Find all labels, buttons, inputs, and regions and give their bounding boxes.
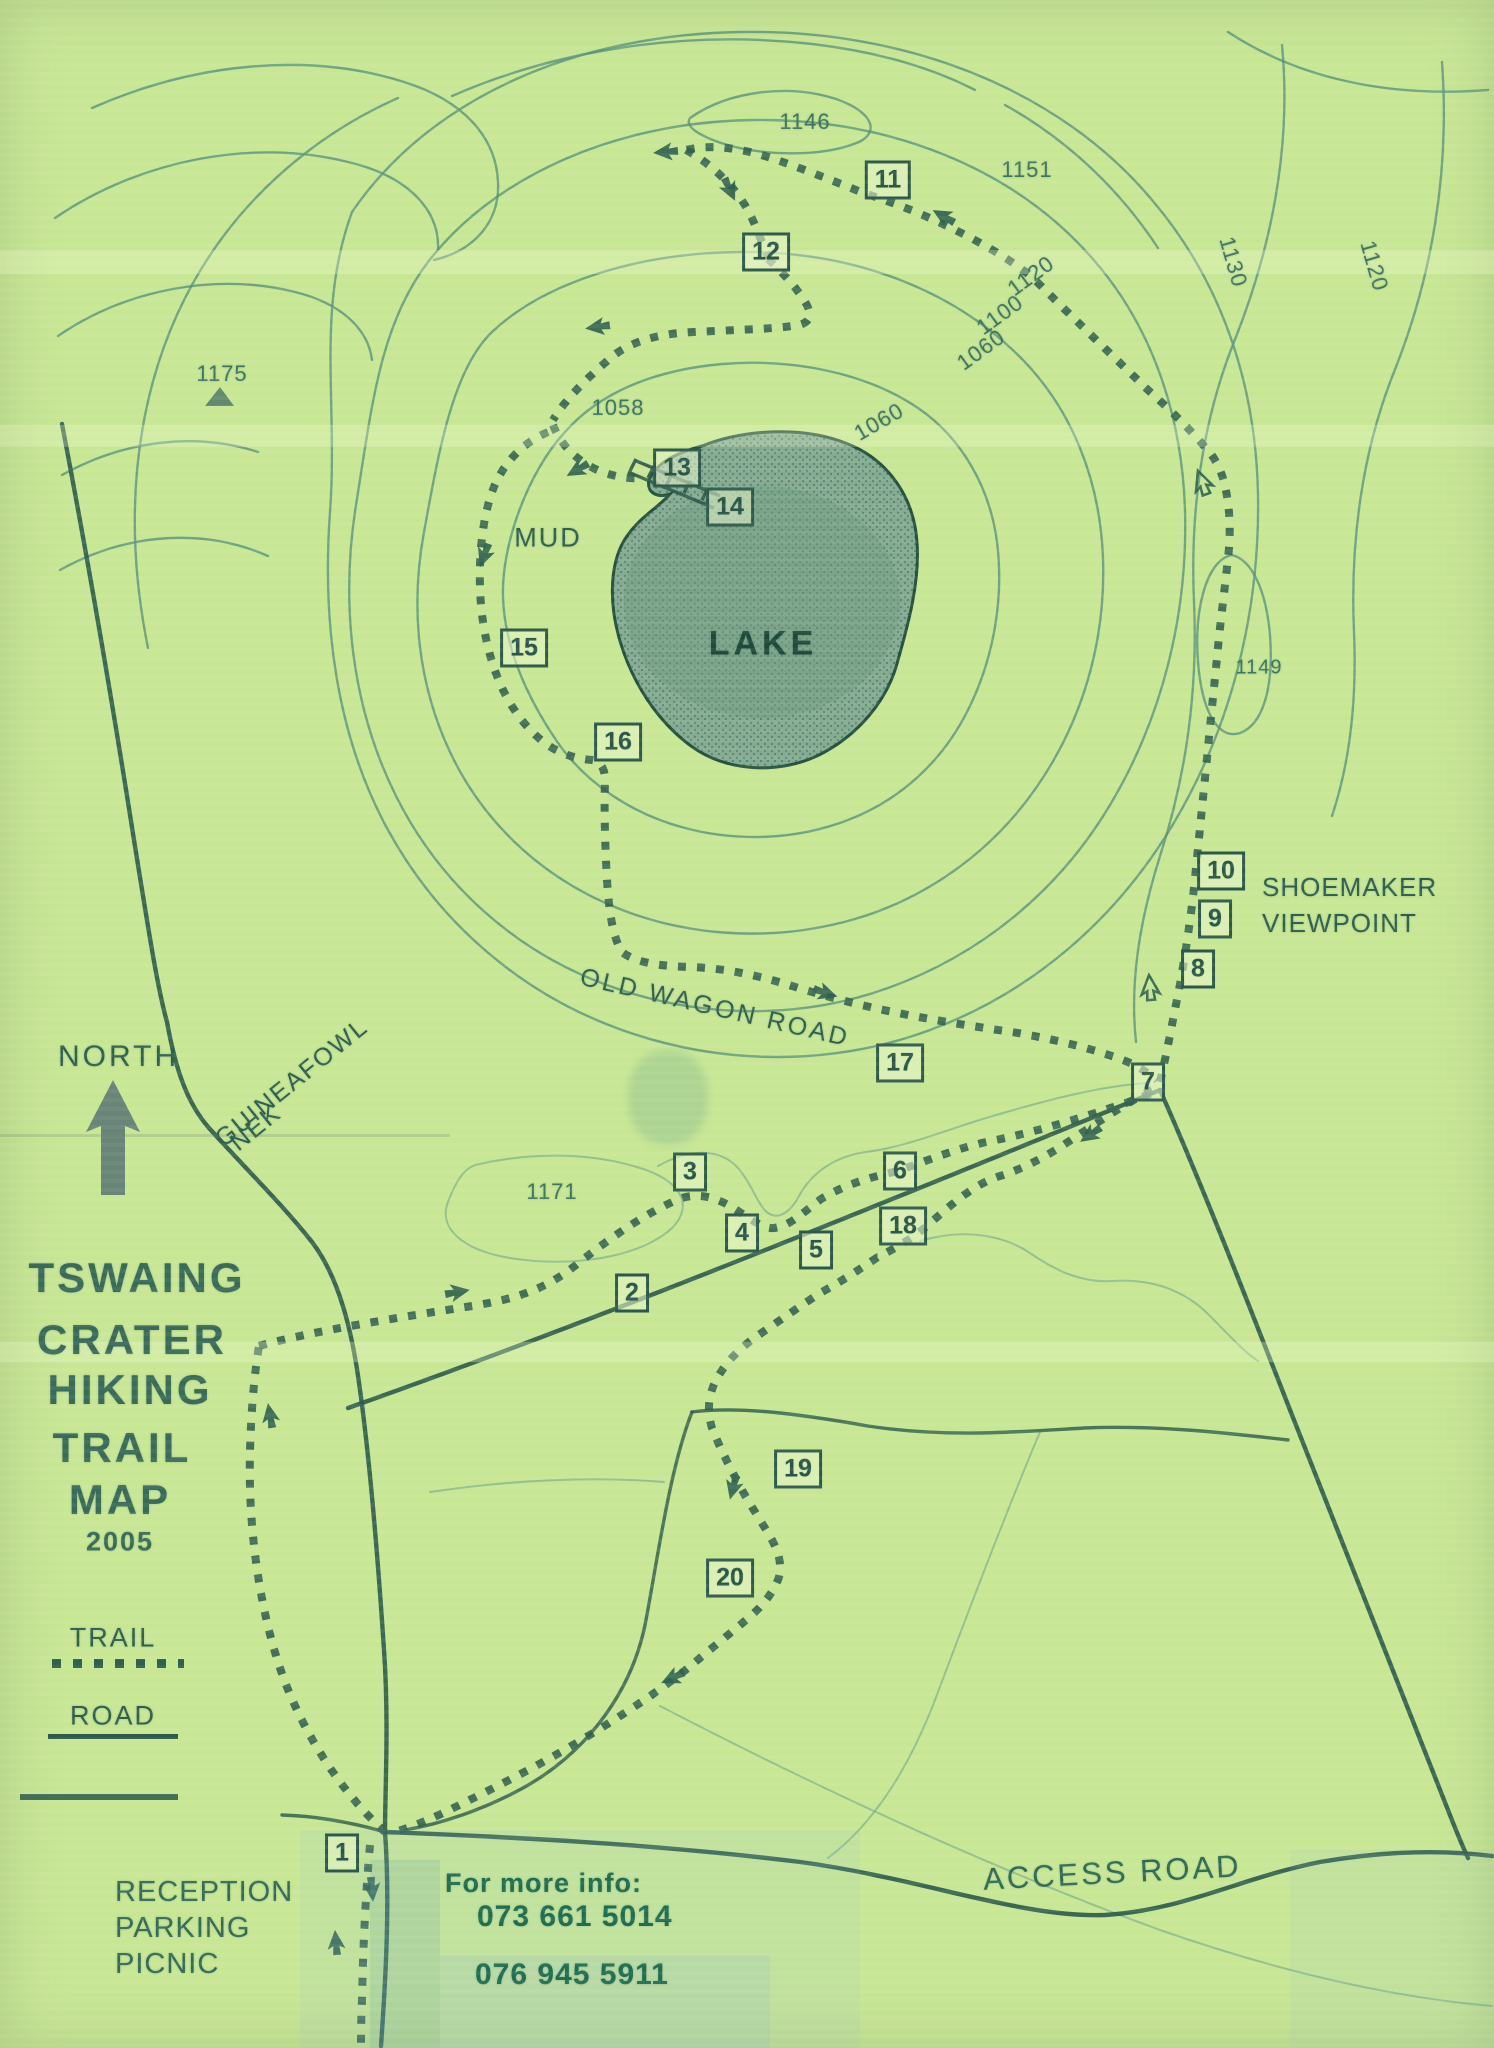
legend-road-label: ROAD [70,1701,156,1732]
north-arrow-icon [86,1080,140,1195]
waypoint-18-marker: 18 [879,1207,927,1246]
map-title-line1: TSWAING [29,1254,246,1302]
north-label: NORTH [58,1040,179,1074]
waypoint-1-marker: 1 [325,1834,359,1873]
waypoint-17-marker: 17 [876,1044,924,1083]
waypoint-9-marker: 9 [1198,900,1232,939]
inner-road-to-reception [405,1412,692,1830]
parking-label: PARKING [115,1912,250,1945]
hiking-trail-dashed [250,147,1230,2046]
shoemaker-label-line2: VIEWPOINT [1262,908,1417,939]
map-title-line2: CRATER [37,1316,227,1364]
legend-road-sample-lower [20,1794,178,1800]
info-heading: For more info: [445,1868,642,1899]
trail-direction-arrows [259,142,1215,1956]
waypoint-8-marker: 8 [1181,950,1215,989]
waypoint-10-marker: 10 [1197,852,1245,891]
waypoint-20-marker: 20 [706,1559,754,1598]
scanned-trail-map: 1146 1151 1130 1120 1120 1100 1060 1060 … [0,0,1494,2048]
elevation-label-1149: 1149 [1235,657,1282,680]
inner-road-east [692,1410,1288,1440]
lake-label: LAKE [709,625,818,664]
waypoint-2-marker: 2 [615,1274,649,1313]
map-title-year: 2005 [86,1527,154,1558]
elevation-label-1151: 1151 [1001,157,1052,183]
waypoint-14-marker: 14 [706,488,754,527]
legend-trail-label: TRAIL [70,1623,157,1654]
waypoint-12-marker: 12 [742,233,790,272]
waypoint-19-marker: 19 [774,1450,822,1489]
map-title-line5: MAP [69,1476,171,1524]
road-below-junction [381,1832,387,2046]
waypoint-6-marker: 6 [883,1152,917,1191]
legend-trail-sample [52,1659,184,1668]
waypoint-11-marker: 11 [865,161,911,200]
waypoint-5-marker: 5 [799,1231,833,1270]
waypoint-15-marker: 15 [500,629,548,668]
reception-label: RECEPTION [115,1876,293,1909]
map-title-line4: TRAIL [53,1424,192,1472]
elevation-label-1171: 1171 [526,1179,577,1205]
southeast-road [1160,1090,1468,1858]
waypoint-13-marker: 13 [653,449,701,488]
peak-triangle-icon [205,387,234,406]
info-phone-1: 073 661 5014 [477,1900,673,1934]
waypoint-16-marker: 16 [594,723,642,762]
info-phone-2: 076 945 5911 [475,1958,669,1992]
elevation-label-1146: 1146 [779,109,830,135]
legend-road-sample [48,1734,178,1739]
waypoint-3-marker: 3 [673,1153,707,1192]
mud-label: MUD [514,523,582,554]
picnic-label: PICNIC [115,1948,219,1981]
waypoint-4-marker: 4 [725,1214,759,1253]
map-title-line3: HIKING [48,1366,213,1414]
elevation-label-1175: 1175 [196,361,247,387]
shoemaker-label-line1: SHOEMAKER [1262,872,1437,903]
waypoint-7-marker: 7 [1131,1063,1165,1102]
elevation-label-1058: 1058 [592,395,645,421]
